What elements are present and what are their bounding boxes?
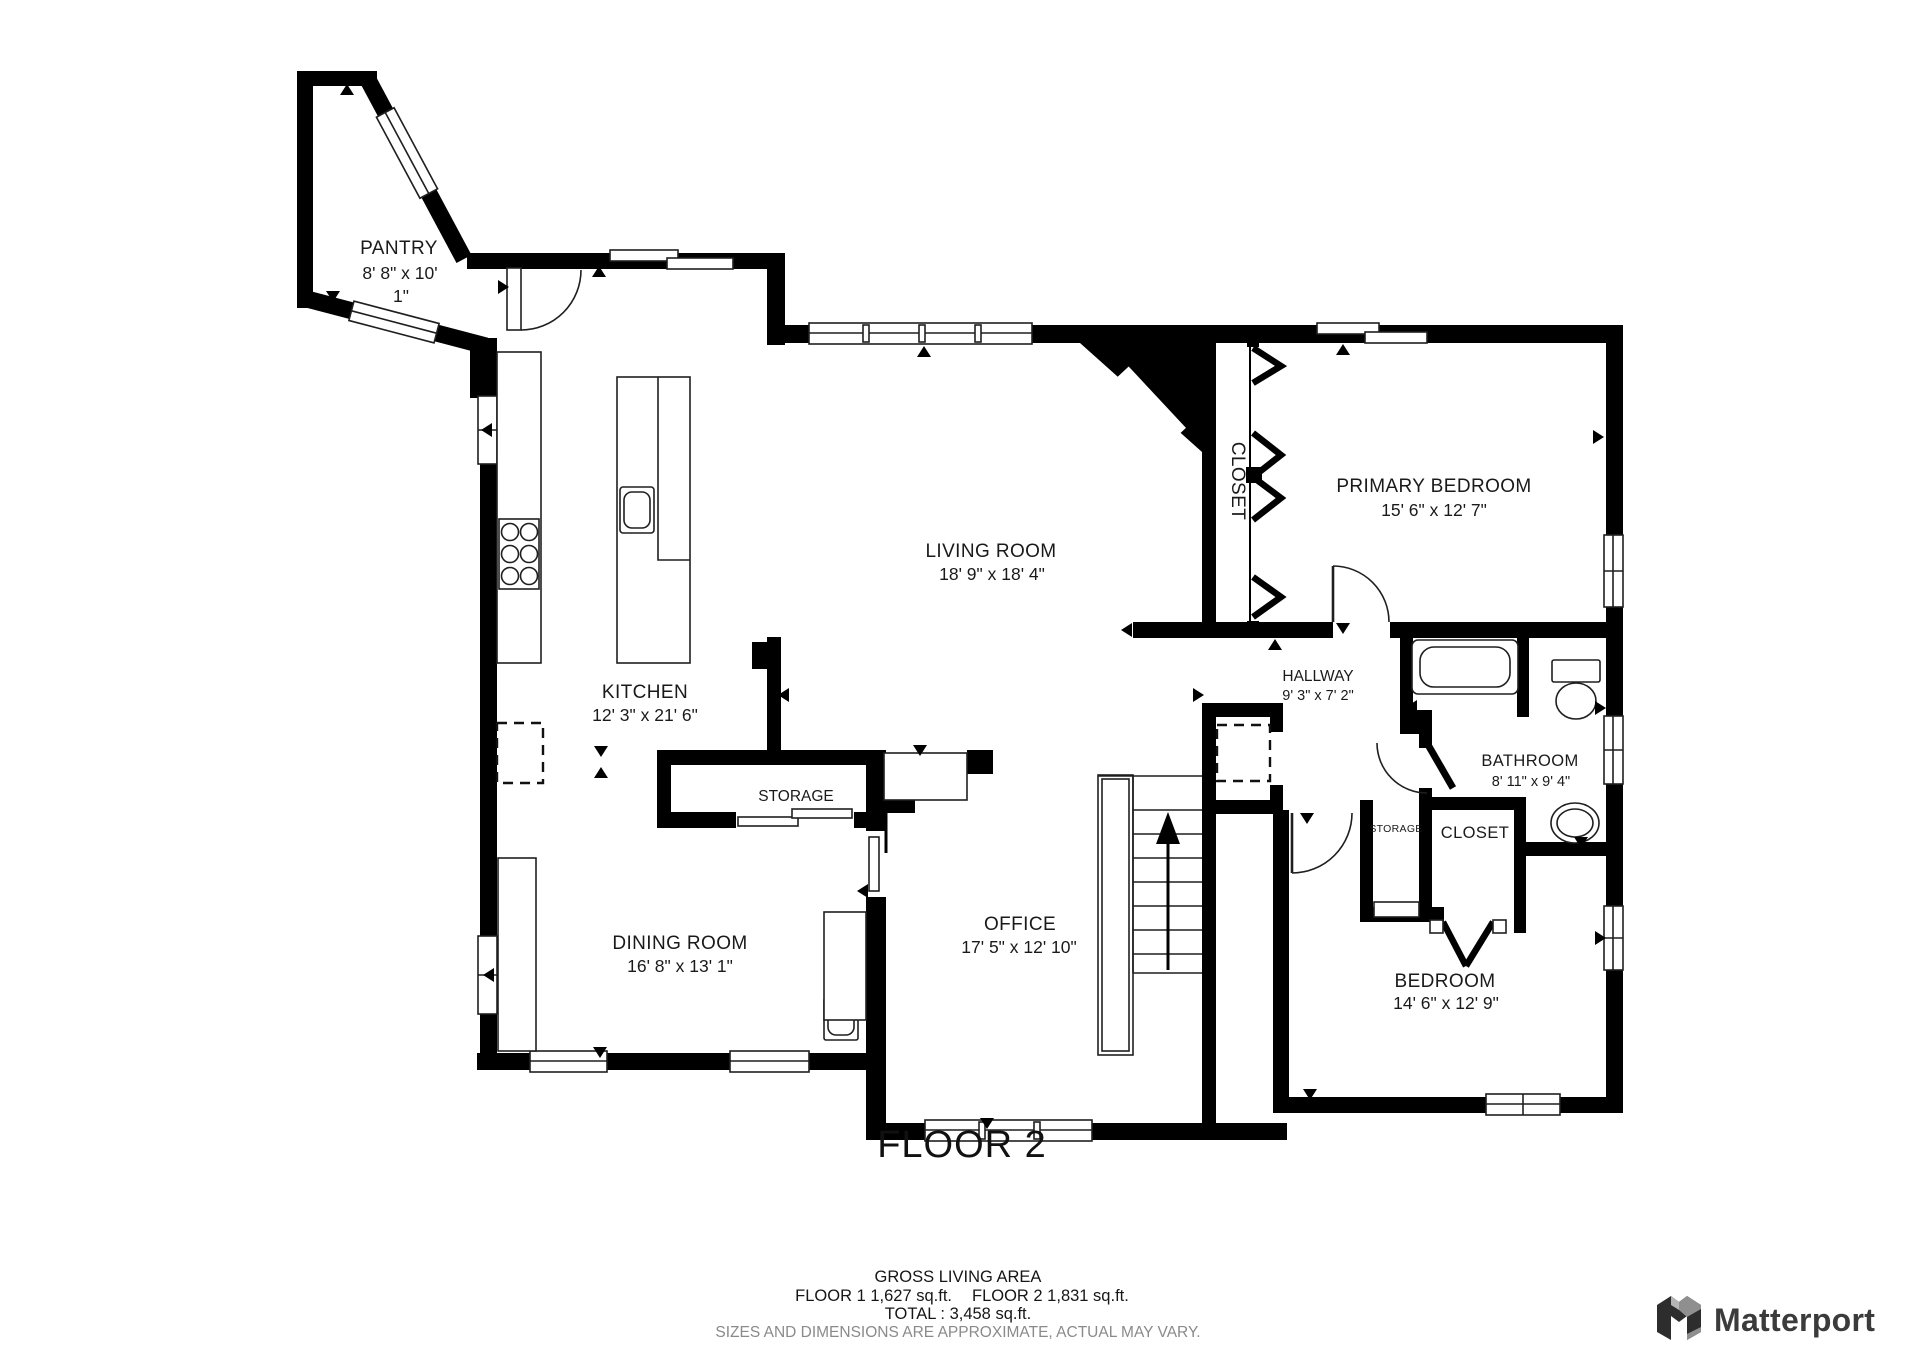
window-living-top [809,323,1032,344]
room-dims-office: 17' 5" x 12' 10" [961,937,1076,957]
floor-title: FLOOR 2 [877,1124,1047,1166]
matterport-logo: Matterport [1657,1296,1875,1340]
door-leaf-entry [507,268,521,330]
room-dims-pantry-2: 1" [393,286,409,306]
room-dims-kitchen: 12' 3" x 21' 6" [592,705,698,725]
door-panel-storage-nook [1374,902,1419,917]
room-dims-living: 18' 9" x 18' 4" [939,564,1045,584]
window-bedroom-east [1604,906,1623,970]
room-label-hallway: HALLWAY [1282,668,1353,685]
room-label-closet-primary: CLOSET [1227,442,1248,520]
room-label-primary-bedroom: PRIMARY BEDROOM [1336,476,1531,497]
footer-gross-title: GROSS LIVING AREA [875,1268,1042,1286]
stairs [1098,775,1202,1055]
dining-buffet [498,858,536,1051]
stove [499,519,539,589]
window-primary-east [1604,535,1623,607]
room-label-kitchen: KITCHEN [602,682,688,703]
room-label-closet-bedroom: CLOSET [1441,824,1509,842]
office-door-slab [824,912,866,1020]
footer-disclaimer: SIZES AND DIMENSIONS ARE APPROXIMATE, AC… [715,1324,1200,1341]
floorplan-page: PANTRY 8' 8" x 10' 1" KITCHEN 12' 3" x 2… [0,0,1920,1358]
window-pantry-lower [349,301,439,343]
room-label-storage-main: STORAGE [758,788,834,805]
door-panel-dining [869,837,879,891]
floorplan-canvas: PANTRY 8' 8" x 10' 1" KITCHEN 12' 3" x 2… [0,0,1920,1358]
door-slider-storage-2 [792,809,852,818]
room-label-dining: DINING ROOM [612,933,747,954]
room-label-bathroom: BATHROOM [1481,752,1578,770]
door-arc-bedroom [1292,813,1352,873]
room-dims-bedroom: 14' 6" x 12' 9" [1393,993,1499,1013]
window-dining-south-1 [530,1051,607,1072]
footer-floor1-area: FLOOR 1 1,627 sq.ft. [795,1287,952,1305]
room-label-pantry: PANTRY [360,238,438,259]
room-label-bedroom: BEDROOM [1395,971,1496,992]
door-bifold-primary-closet [1246,338,1281,632]
room-dims-pantry-1: 8' 8" x 10' [362,263,437,283]
toilet [1552,660,1600,719]
door-slider-storage-1 [738,817,798,826]
room-dims-bathroom: 8' 11" x 9' 4" [1492,774,1570,790]
cased-opening [884,753,967,800]
matterport-logo-icon [1657,1296,1701,1340]
dashed-feature-hallway [1217,725,1270,781]
door-bifold-bedroom-closet [1443,922,1493,966]
footer-total-area: TOTAL : 3,458 sq.ft. [885,1305,1031,1323]
room-dims-hallway: 9' 3" x 7' 2" [1282,688,1353,704]
footer-floor2-area: FLOOR 2 1,831 sq.ft. [972,1287,1129,1305]
room-label-storage-small: STORAGE [1369,823,1422,835]
door-arc-bathroom [1377,743,1427,793]
door-arc-entry [521,270,581,330]
matterport-logo-text: Matterport [1714,1302,1875,1338]
room-label-living: LIVING ROOM [925,541,1056,562]
kitchen-counter [497,352,541,663]
dashed-feature-kitchen [497,723,543,783]
kitchen-island [617,377,690,663]
annotations: FLOOR 2 GROSS LIVING AREA FLOOR 1 1,627 … [715,1124,1200,1341]
room-dims-dining: 16' 8" x 13' 1" [627,956,733,976]
bathtub [1412,640,1518,694]
door-arc-primary [1333,566,1389,622]
window-bathroom-east [1604,716,1623,784]
window-pantry-upper [376,108,437,199]
room-dims-primary-bedroom: 15' 6" x 12' 7" [1381,500,1487,520]
room-label-office: OFFICE [984,914,1056,935]
window-bedroom-south [1486,1094,1560,1115]
window-dining-south-2 [730,1051,809,1072]
